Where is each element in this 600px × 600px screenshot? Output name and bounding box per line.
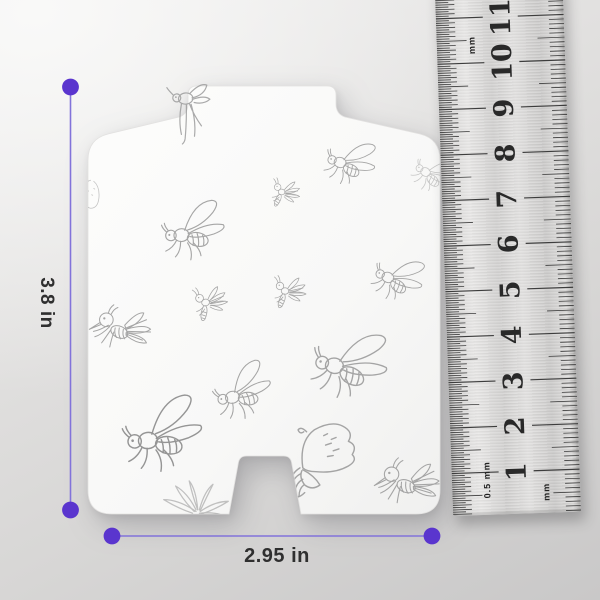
ruler-number: 9 [488,92,519,123]
ruler-unit-label-bottom-left: 0.5 mm [481,456,493,504]
width-dimension [104,528,441,545]
height-dimension-bottom-dot [62,502,79,519]
height-dimension [62,79,79,519]
ruler-number: 4 [496,319,527,350]
ruler-unit-label-bottom-right: mm [541,479,552,505]
ruler-number: 1 [501,456,532,487]
ruler-number: 2 [500,410,531,441]
width-dimension-right-dot [424,528,441,545]
ruler: 1234567891011 mm 0.5 mm mm [435,0,581,516]
width-dimension-label: 2.95 in [232,545,322,568]
ruler-number: 10 [487,47,518,78]
product-dimension-image: { "dimensions": { "height_label": "3.8 i… [0,0,600,600]
height-dimension-top-dot [62,79,79,96]
ruler-number: 7 [492,183,523,214]
ruler-number: 3 [498,365,529,396]
ruler-number: 11 [485,1,516,32]
height-dimension-label: 3.8 in [35,265,57,341]
width-dimension-left-dot [104,528,121,545]
ruler-unit-label-top: mm [466,34,477,56]
ruler-number: 5 [495,274,526,305]
ruler-number: 8 [490,138,521,169]
ruler-number: 6 [493,228,524,259]
